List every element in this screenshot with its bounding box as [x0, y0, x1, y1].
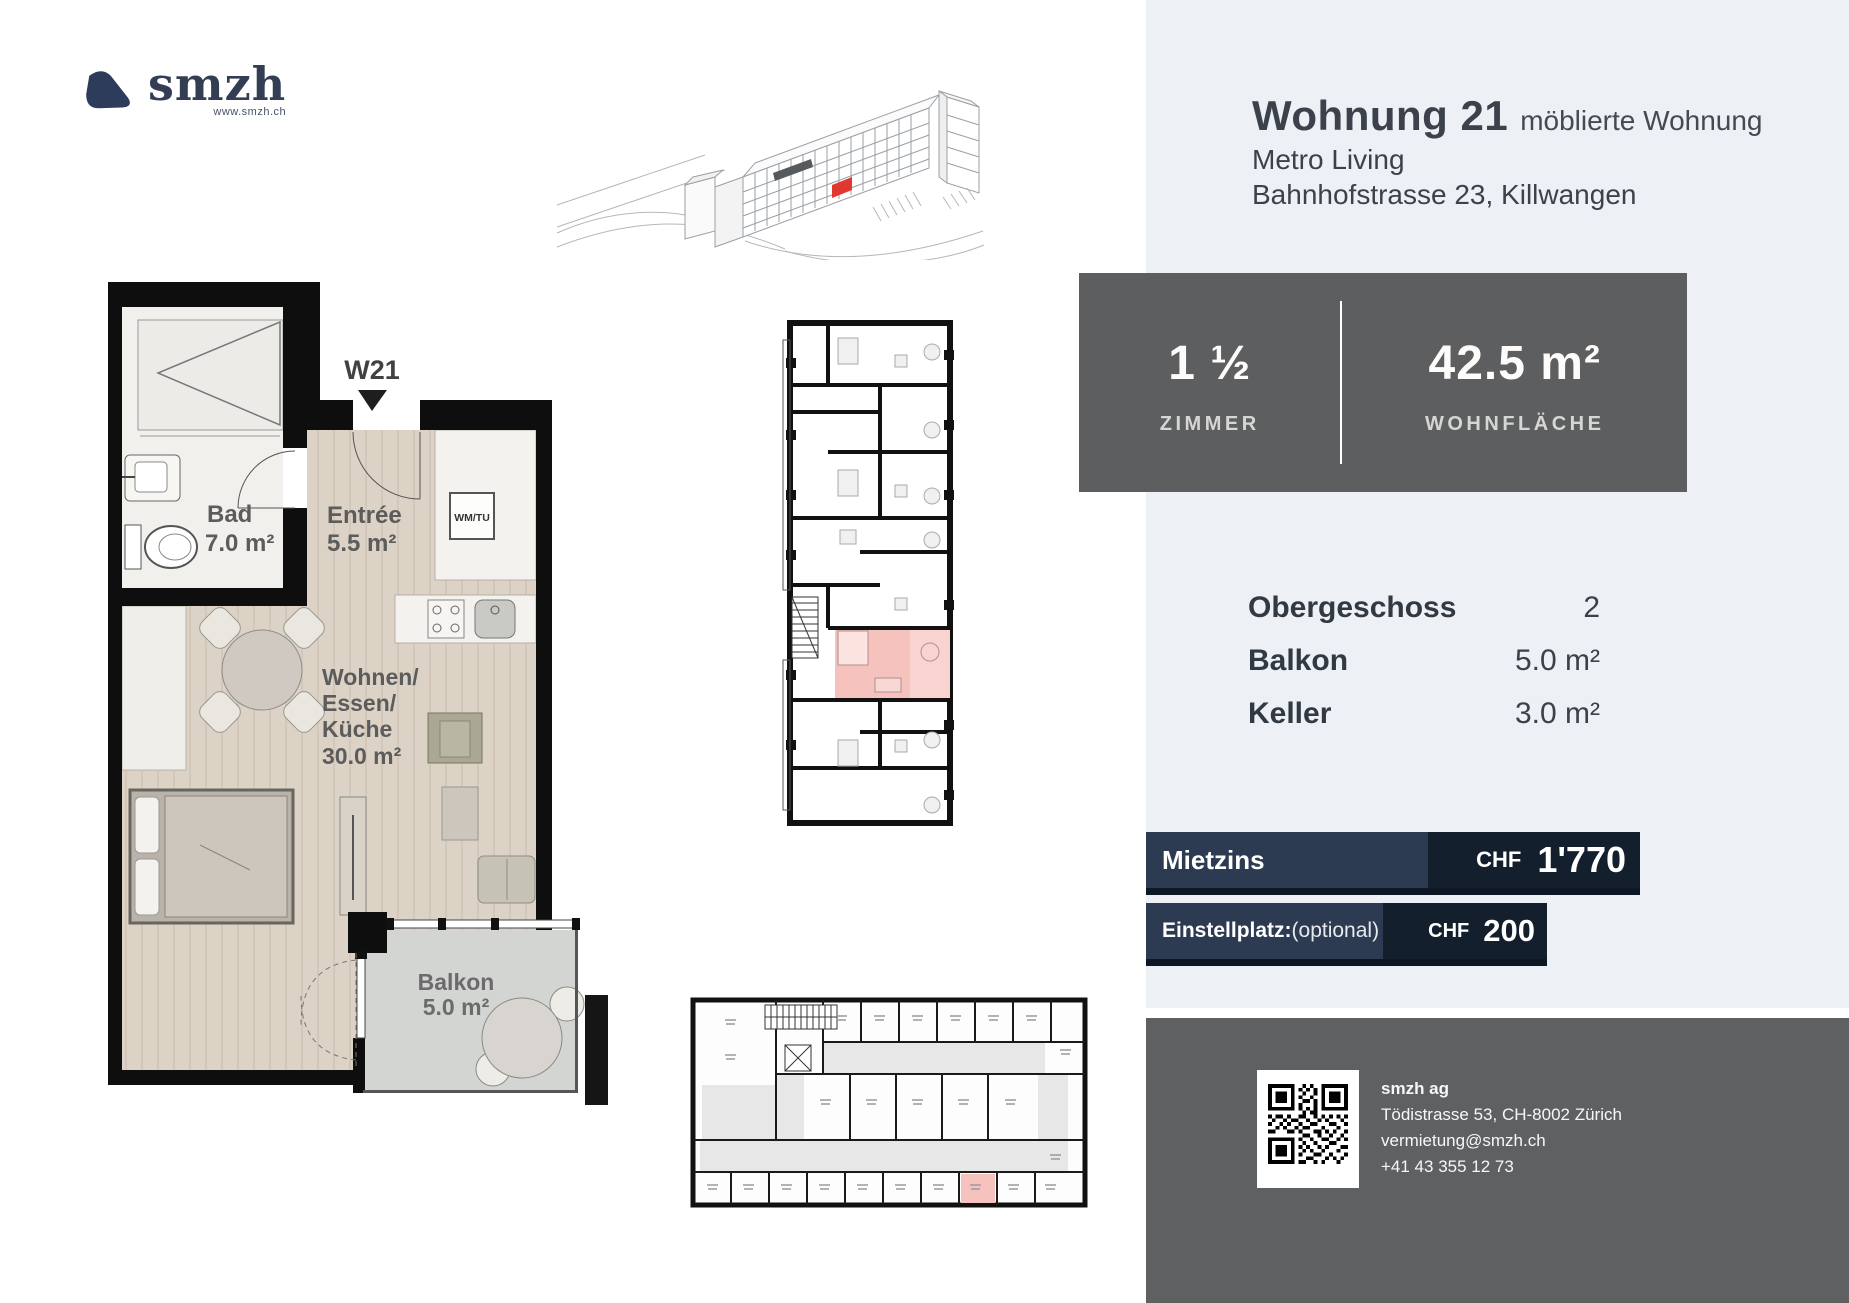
qr-code — [1268, 1084, 1348, 1164]
rent-amount-segment: CHF 1'770 — [1428, 832, 1640, 888]
contact-company: smzh ag — [1381, 1076, 1622, 1102]
contact-phone: +41 43 355 12 73 — [1381, 1154, 1622, 1180]
room-area-balkon: 5.0 m² — [423, 994, 490, 1020]
project-name: Metro Living — [1252, 144, 1772, 175]
cellar-plan — [580, 990, 1100, 1215]
detail-label: Balkon — [1248, 644, 1348, 678]
apartment-floorplan: W21 Bad 7.0 m² Entrée 5.5 m² Wohnen/ Ess… — [95, 270, 590, 1110]
detail-row-floor: Obergeschoss 2 — [1248, 581, 1600, 634]
footer-band: smzh ag Tödistrasse 53, CH-8002 Zürich v… — [1146, 1018, 1849, 1303]
qr-code-box — [1257, 1070, 1359, 1188]
factsheet-page: smzh ag Tödistrasse 53, CH-8002 Zürich v… — [0, 0, 1849, 1303]
room-area-living: 30.0 m² — [322, 743, 402, 769]
room-area-bad: 7.0 m² — [205, 530, 274, 557]
contact-email: vermietung@smzh.ch — [1381, 1128, 1622, 1154]
page-title-suffix: möblierte Wohnung — [1520, 105, 1762, 136]
room-label-entree: Entrée — [327, 502, 402, 529]
key-stats-box: 1 ½ ZIMMER 42.5 m² WOHNFLÄCHE — [1079, 273, 1687, 492]
company-logo: smzh www.smzh.ch — [80, 62, 286, 118]
parking-label: Einstellplatz: — [1162, 919, 1292, 943]
logo-mark-icon — [80, 62, 134, 116]
parking-amount: 200 — [1483, 913, 1535, 949]
logo-wordmark: smzh — [148, 62, 286, 106]
contact-address: Tödistrasse 53, CH-8002 Zürich — [1381, 1102, 1622, 1128]
detail-row-balcony: Balkon 5.0 m² — [1248, 634, 1600, 687]
rent-amount: 1'770 — [1537, 839, 1626, 881]
room-area-entree: 5.5 m² — [327, 530, 396, 557]
detail-value: 2 — [1583, 591, 1600, 625]
page-title: Wohnung 21 — [1252, 92, 1508, 139]
room-label-living-3: Küche — [322, 716, 392, 742]
unit-label: W21 — [344, 355, 400, 385]
detail-label: Obergeschoss — [1248, 591, 1456, 625]
rent-label-segment: Mietzins — [1146, 832, 1428, 888]
building-3d-render — [555, 35, 985, 260]
rent-currency: CHF — [1476, 847, 1521, 873]
rent-bar: Mietzins CHF 1'770 — [1146, 832, 1640, 888]
storey-overview-plan — [770, 300, 970, 835]
detail-list: Obergeschoss 2 Balkon 5.0 m² Keller 3.0 … — [1248, 581, 1600, 740]
detail-value: 5.0 m² — [1515, 644, 1600, 678]
stat-rooms: 1 ½ ZIMMER — [1079, 273, 1340, 492]
contact-block: smzh ag Tödistrasse 53, CH-8002 Zürich v… — [1381, 1076, 1622, 1180]
stat-area: 42.5 m² WOHNFLÄCHE — [1342, 273, 1687, 492]
stairwell — [792, 597, 818, 658]
rent-label: Mietzins — [1162, 845, 1265, 876]
parking-note: (optional) — [1292, 919, 1380, 943]
closet-label: WM/TU — [454, 512, 490, 524]
room-label-living-1: Wohnen/ — [322, 664, 419, 690]
room-label-balkon: Balkon — [418, 969, 495, 995]
detail-row-cellar: Keller 3.0 m² — [1248, 687, 1600, 740]
parking-bar: Einstellplatz:(optional) CHF 200 — [1146, 903, 1547, 959]
area-label: WOHNFLÄCHE — [1425, 413, 1604, 436]
listing-header: Wohnung 21möblierte Wohnung Metro Living… — [1252, 92, 1772, 210]
room-label-bad: Bad — [207, 501, 252, 528]
parking-amount-segment: CHF 200 — [1383, 903, 1547, 959]
detail-label: Keller — [1248, 697, 1331, 731]
room-label-living-2: Essen/ — [322, 690, 397, 716]
parking-label-segment: Einstellplatz:(optional) — [1146, 903, 1383, 959]
project-address: Bahnhofstrasse 23, Killwangen — [1252, 179, 1772, 210]
detail-value: 3.0 m² — [1515, 697, 1600, 731]
rooms-label: ZIMMER — [1160, 413, 1260, 436]
area-value: 42.5 m² — [1429, 336, 1601, 391]
parking-currency: CHF — [1428, 920, 1469, 943]
rooms-value: 1 ½ — [1168, 336, 1251, 391]
entry-arrow-icon — [358, 390, 387, 411]
